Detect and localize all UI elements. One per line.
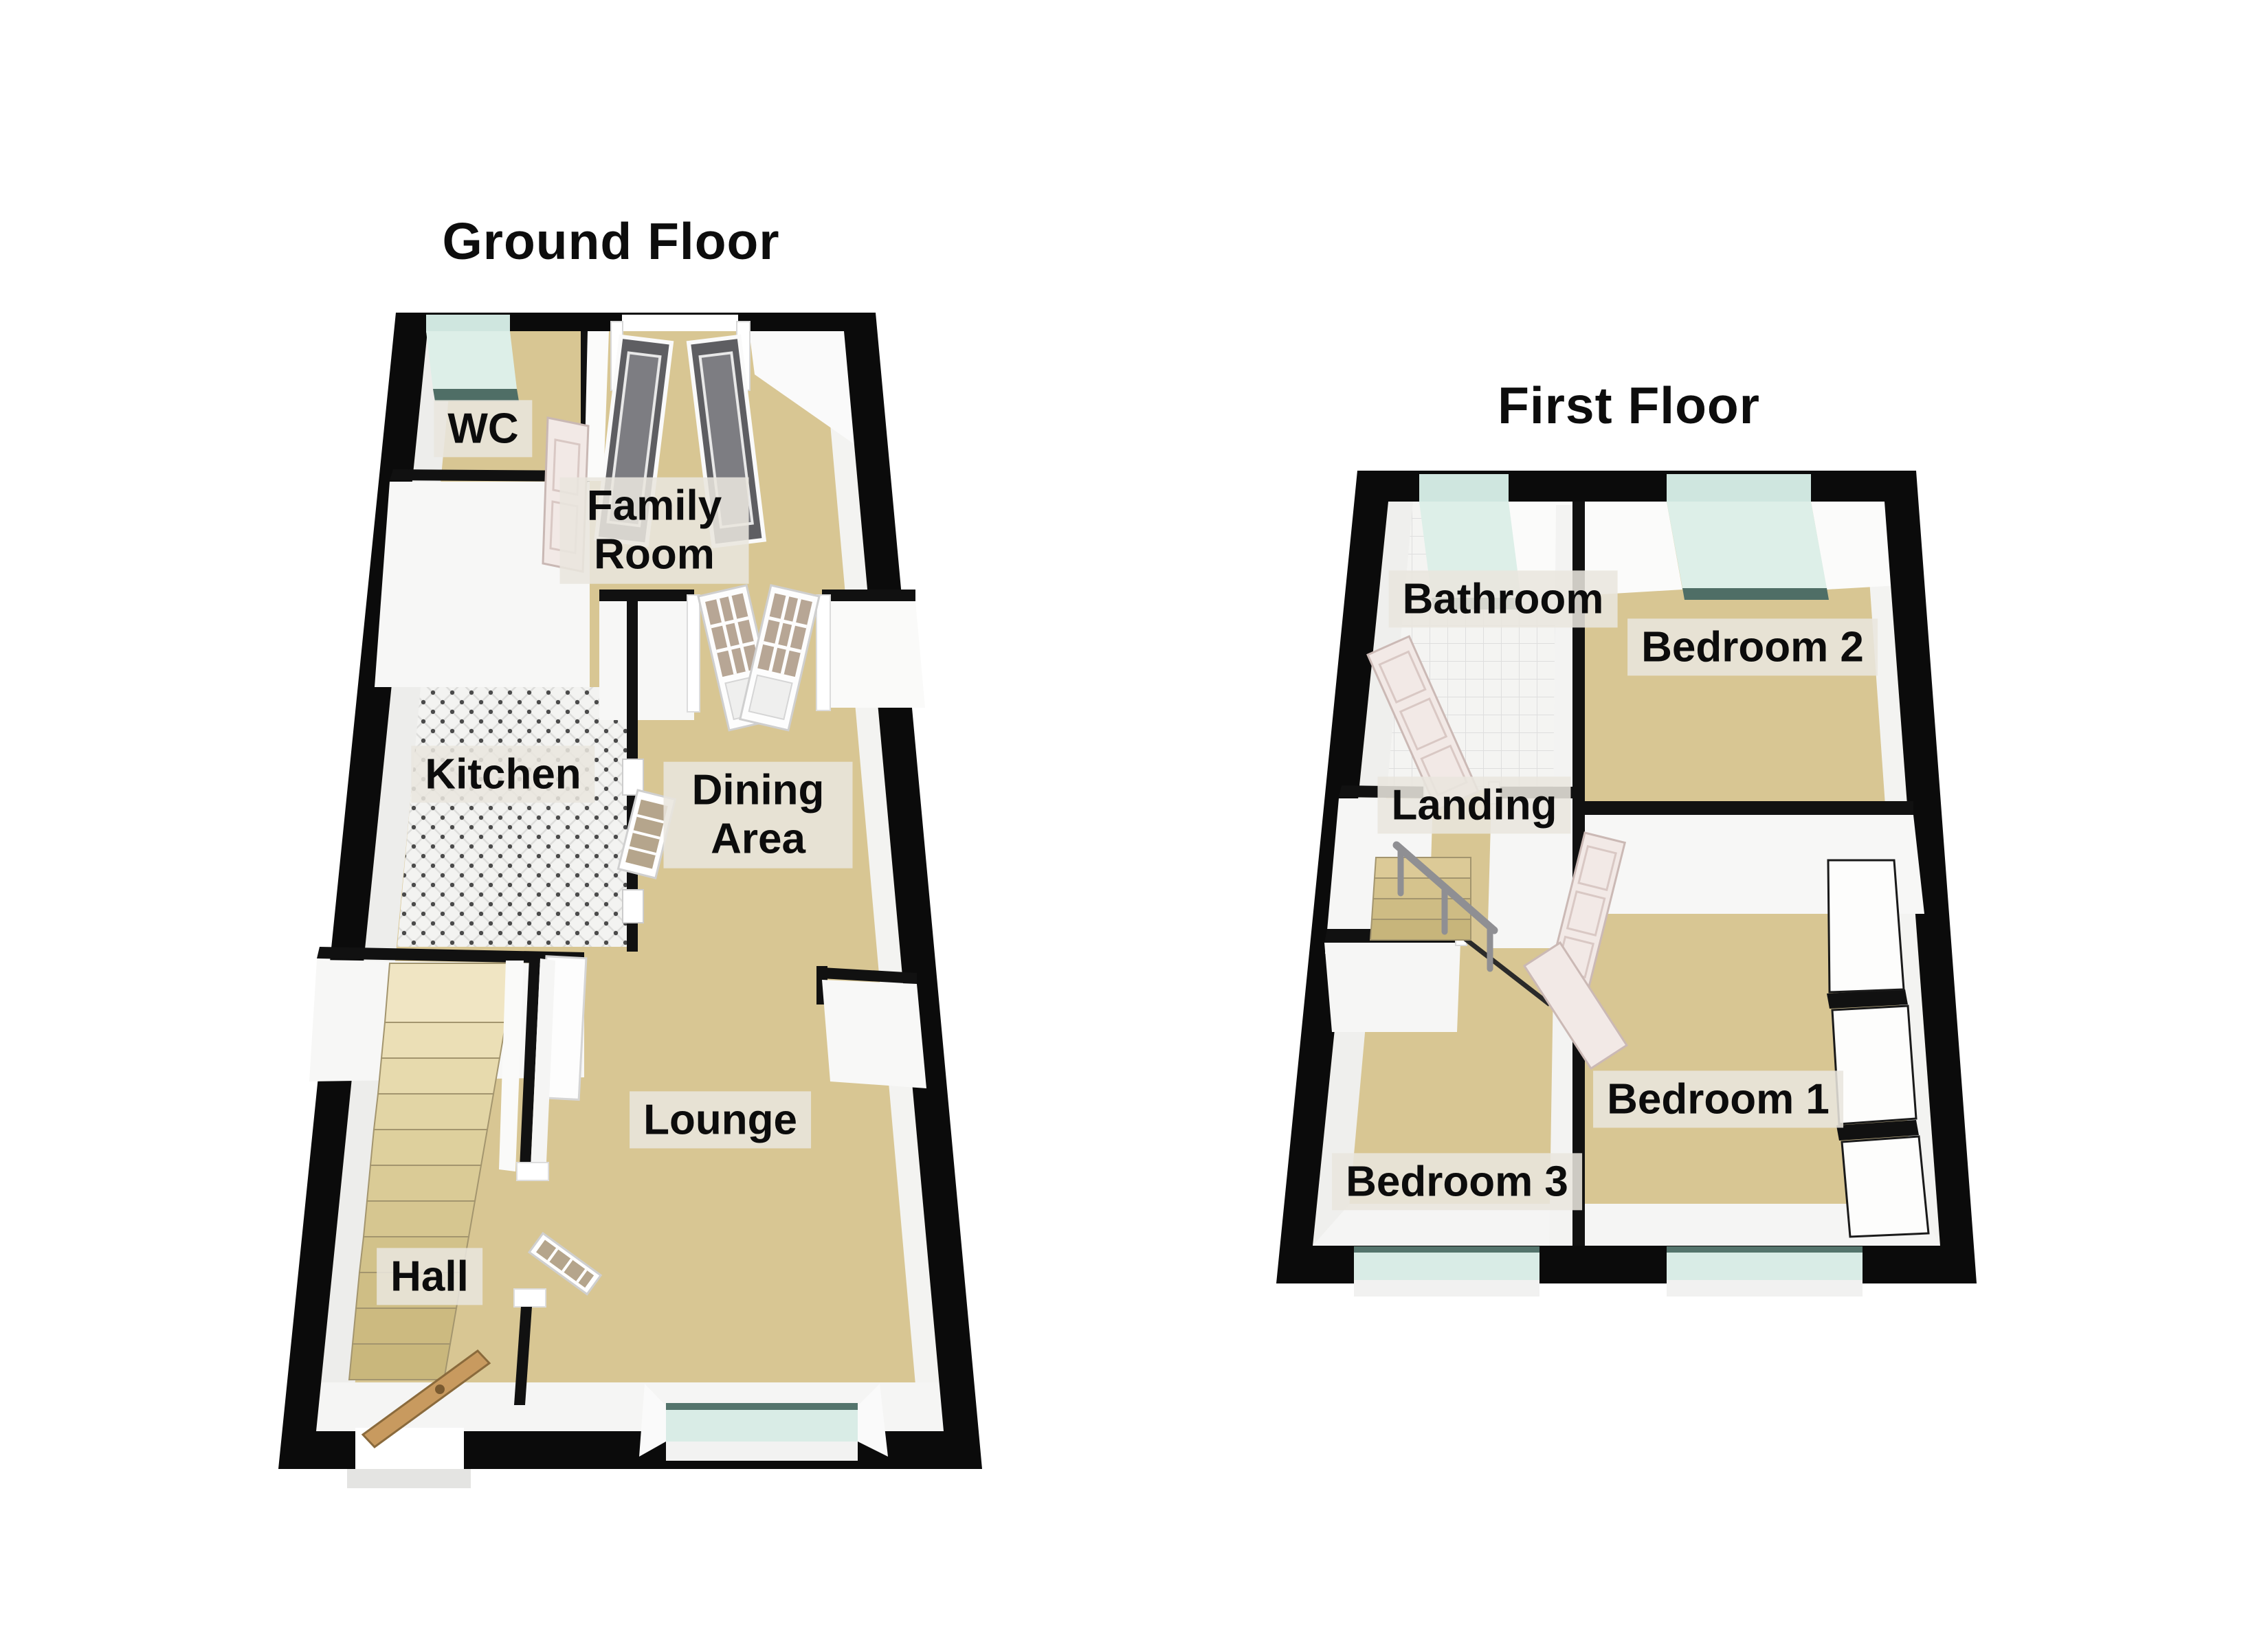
room-label-bedroom-3: Bedroom 3: [1332, 1153, 1582, 1210]
dining-north-wall-left-face: [599, 601, 694, 720]
first-floor-title: First Floor: [1498, 376, 1760, 435]
room-label-lounge: Lounge: [630, 1091, 811, 1148]
dining-north-wall-right-face: [822, 601, 925, 708]
bedroom-2-window: [1667, 474, 1829, 600]
ground-floor-title: Ground Floor: [442, 212, 779, 271]
wall-cap: [514, 1289, 546, 1307]
door-jamb: [687, 595, 700, 712]
family-room-doorway: [622, 315, 738, 331]
dining-north-wall-right: [822, 590, 915, 601]
wc-window: [426, 315, 519, 401]
wall-cap: [623, 890, 643, 923]
room-label-bathroom: Bathroom: [1389, 570, 1618, 627]
room-label-hall: Hall: [377, 1248, 482, 1305]
dining-north-wall-left: [599, 590, 694, 601]
room-label-bedroom-2: Bedroom 2: [1627, 618, 1878, 675]
room-label-dining-area: Dining Area: [664, 762, 853, 868]
bedroom-1-window: [1667, 1246, 1863, 1297]
bedroom-3-window: [1354, 1246, 1539, 1297]
room-label-bedroom-1: Bedroom 1: [1593, 1070, 1843, 1128]
wall-cap: [517, 1163, 548, 1180]
floorplan-page: Ground Floor First Floor WC Family Room …: [0, 0, 2268, 1649]
front-doorstep: [347, 1469, 471, 1488]
door-jamb: [816, 595, 830, 710]
room-label-landing: Landing: [1377, 776, 1570, 833]
room-label-family-room: Family Room: [560, 478, 749, 584]
room-label-kitchen: Kitchen: [411, 745, 594, 803]
bedroom-2-south-wall: [1585, 801, 1913, 815]
wall-cap: [623, 759, 643, 795]
kitchen-tile-floor: [397, 687, 627, 947]
dining-south-wall-face: [822, 980, 926, 1088]
floorplan-drawing: [0, 0, 2268, 1649]
bedroom-3-north-wall-face: [1324, 943, 1460, 1032]
room-label-wc: WC: [434, 400, 532, 457]
